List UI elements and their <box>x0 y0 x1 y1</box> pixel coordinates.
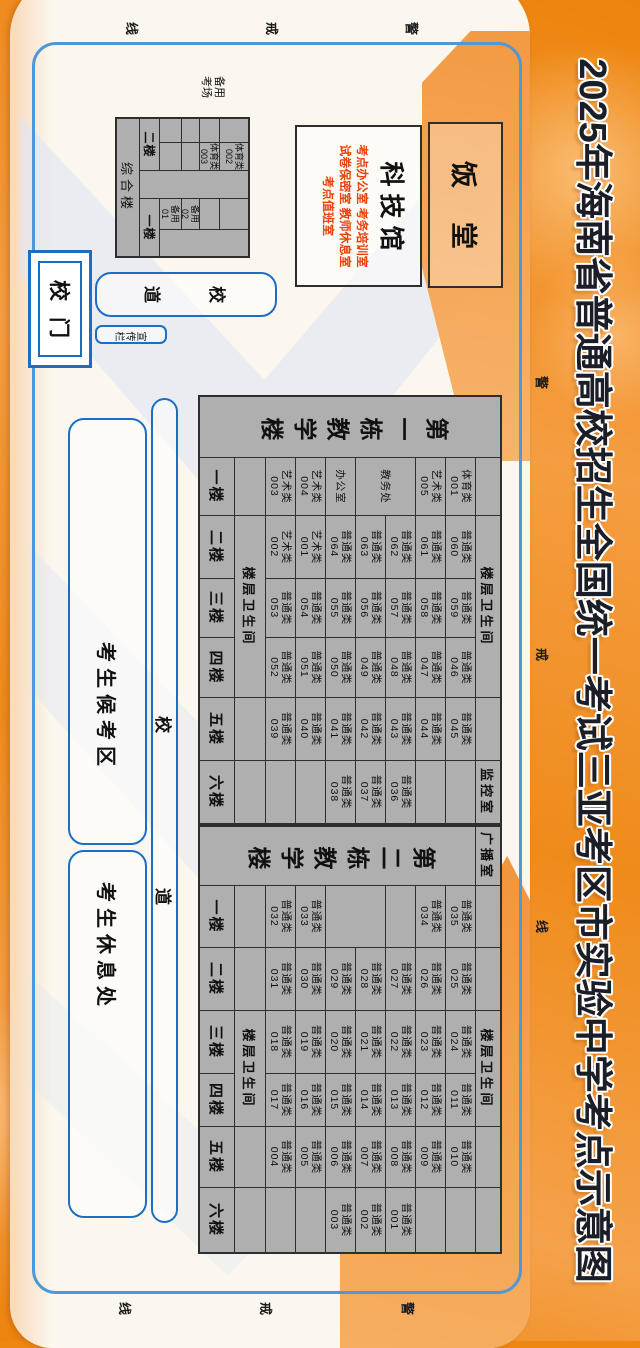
exam-room-cell: 普通类031 <box>266 948 295 1010</box>
empty-room-cell <box>140 171 248 198</box>
exam-room-cell: 普通类038 <box>326 761 355 823</box>
exam-room-cell: 普通类061 <box>416 516 445 578</box>
corridor-cell <box>476 1127 500 1187</box>
warning-line-char: 线 <box>116 1302 135 1315</box>
exam-room-cell: 普通类010 <box>446 1127 475 1187</box>
school-gate-label: 校门 <box>45 280 75 354</box>
exam-room-cell: 普通类049 <box>356 638 385 697</box>
exam-room-cell: 普通类034 <box>416 886 445 947</box>
teaching-building-table: 广播室第二栋教学楼楼层卫生间普通类035普通类034普通类033普通类032一楼… <box>198 825 502 1254</box>
science-hall-label: 科技馆 <box>375 161 411 257</box>
exam-room-cell: 普通类026 <box>416 948 445 1010</box>
exam-room-cell: 普通类001 <box>386 1188 415 1252</box>
gate-road-char: 校 <box>206 286 231 303</box>
teaching-building-table: 第一栋教学楼楼层卫生间监控室体育类001艺术类005教务处办公室艺术类004艺术… <box>198 395 502 825</box>
exam-room-cell: 普通类023 <box>416 1011 445 1073</box>
exam-room-cell: 备用01 <box>160 199 181 229</box>
corridor-cell <box>476 948 500 1010</box>
exam-room-cell: 艺术类004 <box>296 458 325 515</box>
backup-exam-rooms-label: 备用 考场 <box>199 76 225 98</box>
exam-room-cell: 普通类013 <box>386 1074 415 1126</box>
exam-room-cell: 普通类008 <box>386 1127 415 1187</box>
science-hall-room-line: 考点办公室 考务培训室 <box>353 144 370 267</box>
composite-building-table: 体育类002体育类003备用02备用01二楼一楼综合楼 <box>115 117 250 258</box>
empty-room-cell <box>200 119 219 142</box>
empty-room-cell <box>416 1188 445 1252</box>
corridor-cell: 监控室 <box>476 761 500 823</box>
exam-room-cell: 普通类029 <box>326 948 355 1010</box>
floor-label-cell: 六楼 <box>200 761 234 823</box>
exam-room-cell: 普通类021 <box>356 1011 385 1073</box>
building-name: 第一栋教学楼 <box>200 397 500 457</box>
empty-room-cell <box>296 761 325 823</box>
exam-room-cell: 普通类059 <box>446 579 475 637</box>
floor-label-cell: 一楼 <box>200 458 234 515</box>
floor-label-cell: 三楼 <box>200 1011 234 1073</box>
exam-room-cell: 普通类056 <box>356 579 385 637</box>
exam-room-cell: 普通类032 <box>266 886 295 947</box>
exam-room-cell: 普通类050 <box>326 638 355 697</box>
exam-room-cell: 普通类015 <box>326 1074 355 1126</box>
corridor-cell <box>235 761 265 823</box>
exam-room-cell: 普通类016 <box>296 1074 325 1126</box>
exam-room-cell: 普通类007 <box>356 1127 385 1187</box>
corridor-cell <box>235 886 265 947</box>
exam-room-cell: 普通类057 <box>386 579 415 637</box>
page-title: 2025年海南省普通高校招生全国统一考试三亚考区市实验中学考点示意图 <box>569 0 624 1341</box>
exam-room-cell: 普通类054 <box>296 579 325 637</box>
corridor-cell <box>476 458 500 515</box>
exam-room-cell: 普通类058 <box>416 579 445 637</box>
candidate-waiting-area: 考生候考区 <box>68 418 147 845</box>
empty-room-cell <box>446 1188 475 1252</box>
exam-room-cell: 普通类062 <box>386 516 415 578</box>
exam-room-cell: 普通类002 <box>356 1188 385 1252</box>
empty-room-cell <box>182 119 199 142</box>
warning-line-char: 线 <box>533 920 552 933</box>
exam-room-cell: 普通类036 <box>386 761 415 823</box>
corridor-cell <box>235 458 265 515</box>
building-name: 第二栋教学楼 <box>200 827 475 885</box>
empty-room-cell <box>296 1188 325 1252</box>
empty-room-cell <box>182 143 199 170</box>
floor-label-cell: 四楼 <box>200 638 234 697</box>
exam-room-cell: 普通类028 <box>356 948 385 1010</box>
broadcast-room-cell: 广播室 <box>476 827 500 885</box>
exam-room-cell: 普通类033 <box>296 886 325 947</box>
exam-room-cell: 体育类002 <box>220 143 248 170</box>
exam-room-cell: 艺术类005 <box>416 458 445 515</box>
floor-label-cell: 一楼 <box>140 199 159 256</box>
exam-room-cell: 普通类035 <box>446 886 475 947</box>
exam-room-cell: 普通类044 <box>416 698 445 760</box>
empty-room-cell <box>160 143 181 170</box>
gate-road-char: 道 <box>141 286 166 303</box>
floor-label-cell: 四楼 <box>200 1074 234 1126</box>
floor-label-cell: 二楼 <box>140 119 159 170</box>
exam-room-cell: 普通类043 <box>386 698 415 760</box>
corridor-cell <box>476 698 500 760</box>
empty-room-cell <box>416 761 445 823</box>
exam-room-cell: 普通类051 <box>296 638 325 697</box>
exam-room-cell: 普通类064 <box>326 516 355 578</box>
exam-room-cell: 普通类041 <box>326 698 355 760</box>
exam-room-cell: 普通类045 <box>446 698 475 760</box>
candidate-rest-area: 考生休息处 <box>68 850 147 1218</box>
floor-label-cell: 五楼 <box>200 1127 234 1187</box>
exam-room-cell: 普通类040 <box>296 698 325 760</box>
science-hall-room-line: 试卷保密室 教师休息室 <box>336 144 353 267</box>
warning-line-char: 警 <box>403 22 422 35</box>
exam-room-cell: 办公室 <box>326 458 355 515</box>
exam-room-cell: 普通类048 <box>386 638 415 697</box>
exam-room-cell: 普通类039 <box>266 698 295 760</box>
exam-room-cell: 教务处 <box>356 458 415 515</box>
empty-room-cell <box>446 761 475 823</box>
exam-room-cell: 普通类047 <box>416 638 445 697</box>
corridor-cell <box>476 886 500 947</box>
corridor-cell: 楼层卫生间 <box>476 516 500 697</box>
exam-room-cell: 普通类006 <box>326 1127 355 1187</box>
exam-room-cell: 普通类024 <box>446 1011 475 1073</box>
canteen-label: 饭堂 <box>446 161 485 283</box>
corridor-cell: 楼层卫生间 <box>235 516 265 697</box>
warning-line-char: 警 <box>399 1302 418 1315</box>
corridor-cell <box>235 698 265 760</box>
science-hall-rooms: 考点办公室 考务培训室 试卷保密室 教师休息室 考点值班室 <box>319 144 370 267</box>
gate-road: 校 道 <box>95 272 277 317</box>
exam-room-cell: 普通类018 <box>266 1011 295 1073</box>
exam-room-cell: 普通类055 <box>326 579 355 637</box>
empty-room-cell <box>160 230 248 256</box>
backup-label-line: 考场 <box>199 76 212 98</box>
science-hall-room-line: 考点值班室 <box>319 144 336 267</box>
school-gate-frame: 校门 <box>38 261 82 357</box>
school-gate: 校门 <box>28 250 92 368</box>
warning-line-char: 戒 <box>263 22 282 35</box>
exam-room-cell: 艺术类003 <box>266 458 295 515</box>
exam-room-cell: 普通类011 <box>446 1074 475 1126</box>
empty-room-cell <box>160 119 181 142</box>
bulletin-board: 宣传栏 <box>95 325 167 344</box>
exam-room-cell: 普通类042 <box>356 698 385 760</box>
exam-room-cell: 艺术类002 <box>266 516 295 578</box>
building-name: 综合楼 <box>117 119 139 256</box>
floor-label-cell: 二楼 <box>200 516 234 578</box>
corridor-cell <box>235 1188 265 1252</box>
exam-room-cell: 普通类025 <box>446 948 475 1010</box>
exam-room-cell: 普通类063 <box>356 516 385 578</box>
empty-room-cell <box>200 199 219 229</box>
main-road-char: 道 <box>152 888 177 905</box>
exam-room-cell: 普通类019 <box>296 1011 325 1073</box>
exam-room-cell: 普通类046 <box>446 638 475 697</box>
canteen-building: 饭堂 <box>428 122 503 288</box>
empty-room-cell <box>220 119 248 142</box>
empty-room-cell <box>266 1188 295 1252</box>
exam-room-cell: 普通类009 <box>416 1127 445 1187</box>
exam-room-cell: 普通类052 <box>266 638 295 697</box>
corridor-cell: 楼层卫生间 <box>476 1011 500 1126</box>
exam-room-cell: 普通类004 <box>266 1127 295 1187</box>
warning-line-char: 戒 <box>257 1302 276 1315</box>
corridor-cell: 楼层卫生间 <box>235 1011 265 1126</box>
exam-room-cell: 普通类060 <box>446 516 475 578</box>
corridor-cell <box>476 1188 500 1252</box>
exam-room-cell: 普通类022 <box>386 1011 415 1073</box>
exam-room-cell: 普通类027 <box>386 948 415 1010</box>
exam-room-cell: 普通类017 <box>266 1074 295 1126</box>
floor-label-cell: 二楼 <box>200 948 234 1010</box>
exam-room-cell: 备用02 <box>182 199 199 229</box>
science-hall-building: 科技馆 考点办公室 考务培训室 试卷保密室 教师休息室 考点值班室 <box>295 125 422 287</box>
backup-label-line: 备用 <box>212 76 225 98</box>
exam-room-cell: 艺术类001 <box>296 516 325 578</box>
exam-room-cell: 体育类003 <box>200 143 219 170</box>
warning-line-char: 戒 <box>533 648 552 661</box>
floor-label-cell: 一楼 <box>200 886 234 947</box>
main-campus-road: 校 道 <box>151 398 178 1223</box>
warning-line-char: 警 <box>533 376 552 389</box>
exam-room-cell: 普通类037 <box>356 761 385 823</box>
exam-room-cell: 体育类001 <box>446 458 475 515</box>
corridor-cell <box>235 948 265 1010</box>
empty-room-cell <box>386 886 415 947</box>
exam-site-map: 2025年海南省普通高校招生全国统一考试三亚考区市实验中学考点示意图 饭堂 科技… <box>0 0 640 1341</box>
floor-label-cell: 五楼 <box>200 698 234 760</box>
warning-line-char: 线 <box>123 22 142 35</box>
exam-room-cell: 普通类053 <box>266 579 295 637</box>
empty-room-cell <box>326 886 385 947</box>
floor-label-cell: 六楼 <box>200 1188 234 1252</box>
exam-room-cell: 普通类005 <box>296 1127 325 1187</box>
exam-room-cell: 普通类014 <box>356 1074 385 1126</box>
corridor-cell <box>235 1127 265 1187</box>
exam-room-cell: 普通类030 <box>296 948 325 1010</box>
empty-room-cell <box>266 761 295 823</box>
exam-room-cell: 普通类012 <box>416 1074 445 1126</box>
exam-room-cell: 普通类003 <box>326 1188 355 1252</box>
floor-label-cell: 三楼 <box>200 579 234 637</box>
main-road-char: 校 <box>152 716 177 733</box>
empty-room-cell <box>220 199 248 229</box>
exam-room-cell: 普通类020 <box>326 1011 355 1073</box>
